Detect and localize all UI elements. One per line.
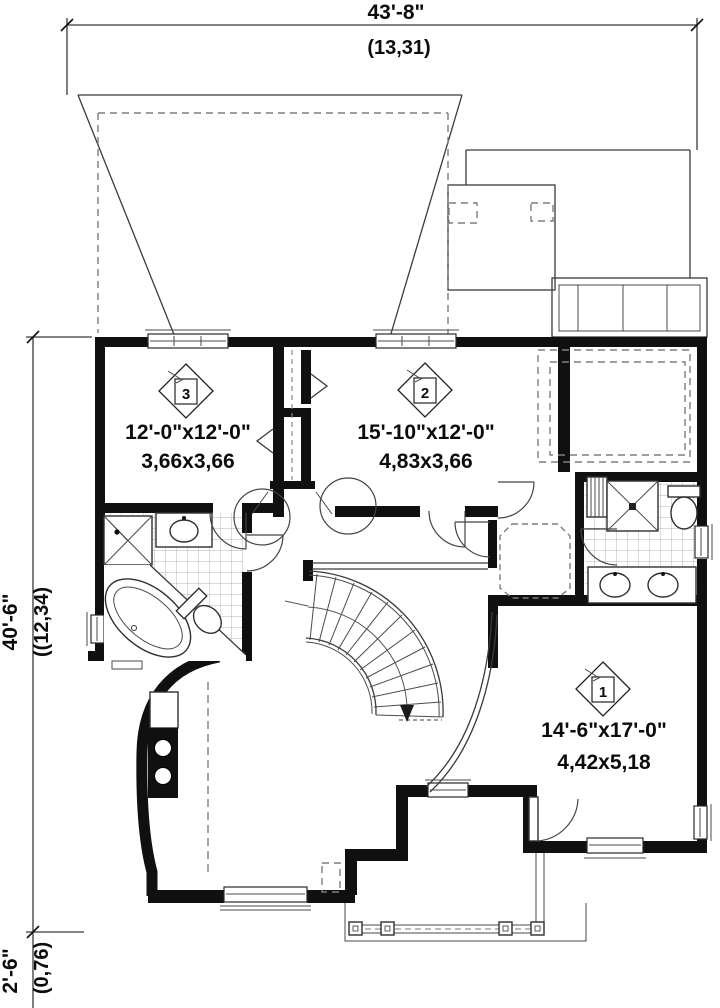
room-1-size-imperial: 14'-6"x17'-0" xyxy=(541,719,667,742)
porch-post-icon xyxy=(381,922,394,935)
room-2-size-imperial: 15'-10"x12'-0" xyxy=(357,421,494,444)
dimension-bottom-metric: (0,76) xyxy=(31,942,53,994)
dimension-left-imperial: 40'-6" xyxy=(0,594,22,651)
laundry-chute xyxy=(148,692,178,798)
dimension-top-metric: (13,31) xyxy=(367,37,430,59)
room-1-size-metric: 4,42x5,18 xyxy=(557,751,651,774)
porch-post-icon xyxy=(349,922,362,935)
room-3-size-imperial: 12'-0"x12'-0" xyxy=(125,421,251,444)
toilet-icon xyxy=(668,486,700,529)
shower-stall-icon xyxy=(607,481,658,531)
dimension-bottom-imperial: 2'-6" xyxy=(0,948,22,993)
dimension-left-metric: ((12,34) xyxy=(31,587,53,657)
room-3-size-metric: 3,66x3,66 xyxy=(141,450,234,473)
room-1-marker: 1 xyxy=(599,684,607,701)
porch-post-icon xyxy=(499,922,512,935)
room-2-marker: 2 xyxy=(421,385,429,402)
dimension-top-imperial: 43'-8" xyxy=(368,1,425,24)
double-vanity xyxy=(588,567,696,603)
sink-icon xyxy=(156,513,212,547)
shower-stall-icon xyxy=(104,516,152,565)
room-2-size-metric: 4,83x3,66 xyxy=(379,450,472,473)
porch-post-icon xyxy=(531,922,544,935)
window xyxy=(425,780,471,797)
floor-plan-canvas: 43'-8" (13,31) 40'-6" ((12,34) 2'-6" (0,… xyxy=(0,0,720,1008)
linen-shelves xyxy=(587,477,607,517)
room-3-marker: 3 xyxy=(182,386,190,403)
floor-plan-page: 43'-8" (13,31) 40'-6" ((12,34) 2'-6" (0,… xyxy=(0,0,720,1008)
